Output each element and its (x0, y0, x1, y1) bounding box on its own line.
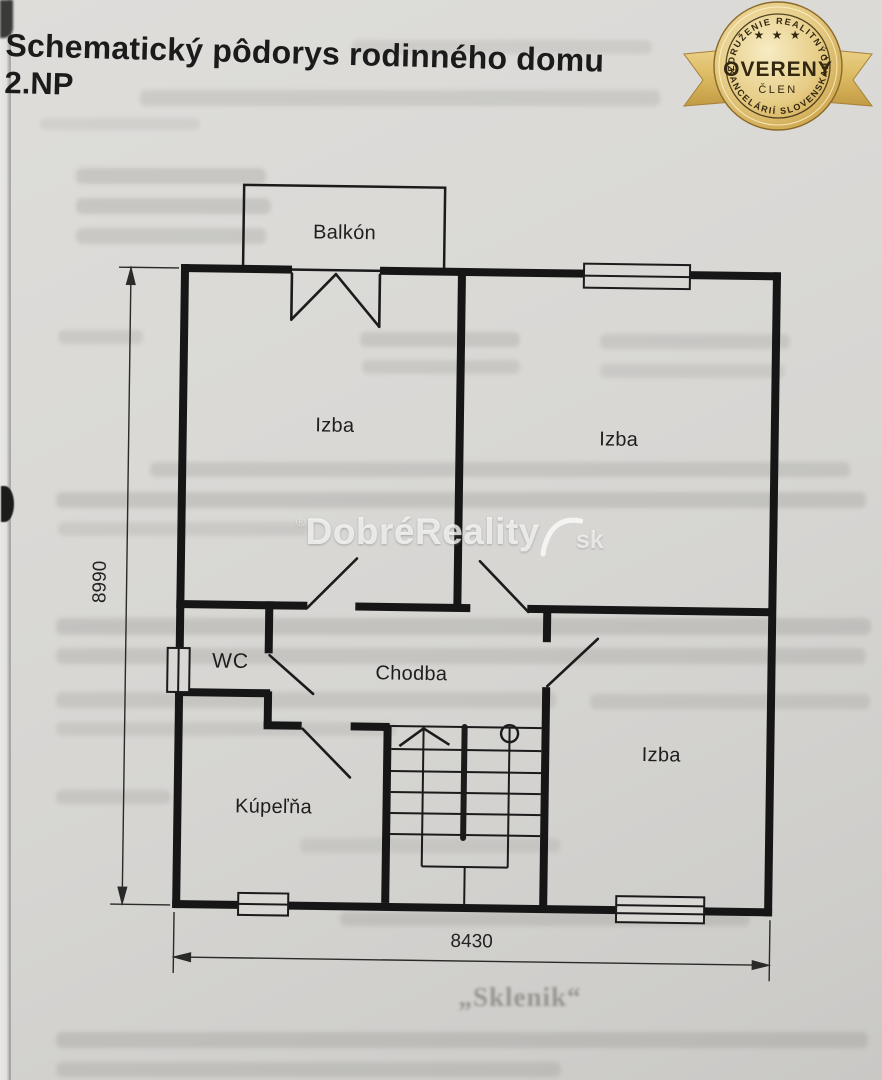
izba-top-left-door-leaf (307, 558, 357, 609)
dobre-reality-watermark: ® DobréReality sk (296, 512, 604, 558)
dimension-label-horizontal: 8430 (450, 931, 493, 954)
room-label-chodba: Chodba (375, 662, 447, 686)
balcony-door-left-stub (291, 274, 292, 320)
room-label-izba-bottom-right: Izba (642, 744, 681, 768)
balcony-door-left-leaf (291, 274, 336, 321)
izba-bottom-right-door-leaf (547, 638, 598, 687)
room-label-izba-top-right: Izba (599, 428, 638, 452)
balcony-door-right-leaf (335, 274, 380, 327)
stair-divider (463, 727, 465, 838)
window-bathroom-bottom (238, 893, 288, 916)
dimension-lines (109, 267, 779, 981)
watermark-name: DobréReality (306, 512, 540, 552)
watermark-tld: sk (576, 526, 604, 555)
room-label-balkon: Balkón (313, 221, 376, 245)
wc-door-leaf (269, 655, 314, 694)
window-wc-left (167, 648, 190, 692)
dimension-label-vertical: 8990 (89, 561, 112, 604)
watermark-reg-symbol: ® (296, 514, 306, 529)
scanned-floorplan-page: „Sklenik“ Schematický pôdorys rodinného … (0, 0, 882, 1080)
room-label-wc: WC (212, 649, 249, 674)
room-label-kupelna: Kúpeľňa (235, 795, 312, 819)
window-top-izba (584, 264, 690, 289)
bathroom-door-leaf (302, 729, 351, 778)
windows (164, 258, 713, 923)
room-label-izba-top-left: Izba (315, 414, 354, 438)
balcony-door-right-stub (379, 275, 380, 327)
dimension-vertical (110, 267, 179, 905)
staircase (389, 723, 541, 905)
window-izba-bottom (616, 896, 704, 923)
izba-top-right-door-leaf (479, 561, 529, 612)
